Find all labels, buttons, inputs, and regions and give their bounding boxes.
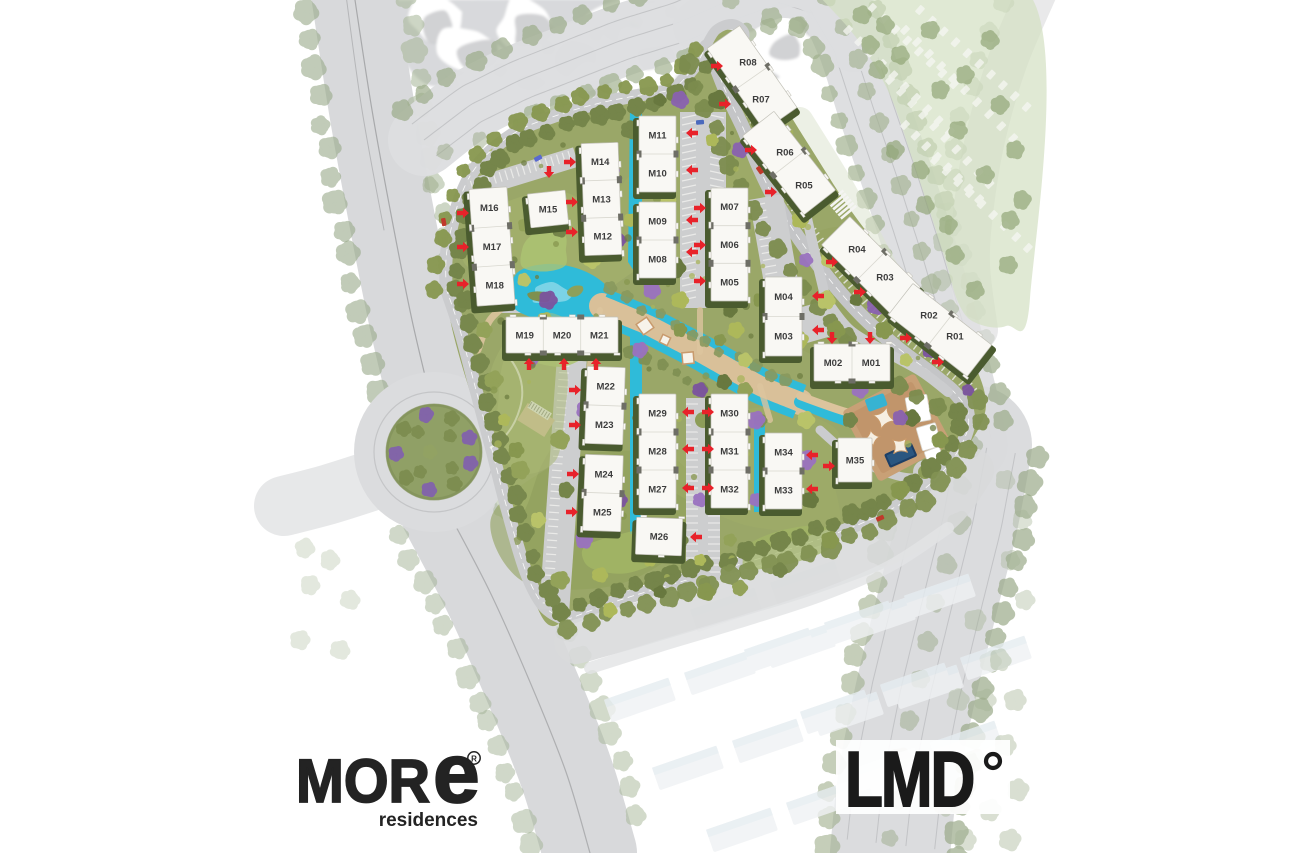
svg-text:M10: M10 <box>648 168 666 179</box>
svg-text:M08: M08 <box>648 254 666 265</box>
svg-text:M35: M35 <box>846 455 865 466</box>
svg-text:M22: M22 <box>596 382 614 393</box>
svg-text:R06: R06 <box>776 147 793 158</box>
svg-text:M18: M18 <box>485 281 503 292</box>
svg-text:M03: M03 <box>774 332 792 343</box>
svg-text:M12: M12 <box>594 232 612 243</box>
svg-text:M02: M02 <box>824 358 842 369</box>
svg-text:M15: M15 <box>539 204 558 215</box>
svg-text:M23: M23 <box>595 420 613 431</box>
svg-text:M05: M05 <box>720 278 739 289</box>
svg-text:M34: M34 <box>774 447 793 458</box>
svg-text:M30: M30 <box>720 408 738 419</box>
svg-text:R: R <box>471 755 477 764</box>
svg-text:M28: M28 <box>648 446 666 457</box>
svg-text:M14: M14 <box>591 157 610 168</box>
svg-text:M26: M26 <box>650 531 669 543</box>
svg-text:residences: residences <box>379 810 478 831</box>
svg-text:M19: M19 <box>515 330 533 341</box>
svg-text:R01: R01 <box>946 331 964 342</box>
svg-text:M33: M33 <box>774 485 792 496</box>
svg-text:M16: M16 <box>480 203 498 214</box>
svg-text:R02: R02 <box>920 310 937 321</box>
svg-text:M20: M20 <box>553 330 571 341</box>
svg-text:M04: M04 <box>774 292 793 303</box>
svg-text:M13: M13 <box>592 194 610 205</box>
svg-text:R05: R05 <box>795 180 813 191</box>
svg-text:R03: R03 <box>876 272 893 283</box>
svg-text:M09: M09 <box>648 216 666 227</box>
svg-text:M31: M31 <box>720 446 739 457</box>
svg-text:M24: M24 <box>594 469 613 480</box>
svg-text:MOR: MOR <box>296 747 430 815</box>
svg-text:M06: M06 <box>720 240 738 251</box>
svg-text:M27: M27 <box>648 484 666 495</box>
svg-text:LMD: LMD <box>845 735 973 822</box>
svg-text:R08: R08 <box>739 57 756 68</box>
svg-text:M11: M11 <box>649 130 668 141</box>
svg-text:M07: M07 <box>720 202 738 213</box>
svg-text:M29: M29 <box>648 408 666 419</box>
svg-text:M21: M21 <box>590 330 609 341</box>
svg-text:M17: M17 <box>483 242 501 253</box>
svg-text:e: e <box>433 726 480 820</box>
svg-text:M32: M32 <box>720 484 738 495</box>
svg-text:R07: R07 <box>752 94 769 105</box>
svg-text:M01: M01 <box>862 358 881 369</box>
svg-text:R04: R04 <box>848 244 866 255</box>
svg-text:M25: M25 <box>593 507 612 518</box>
